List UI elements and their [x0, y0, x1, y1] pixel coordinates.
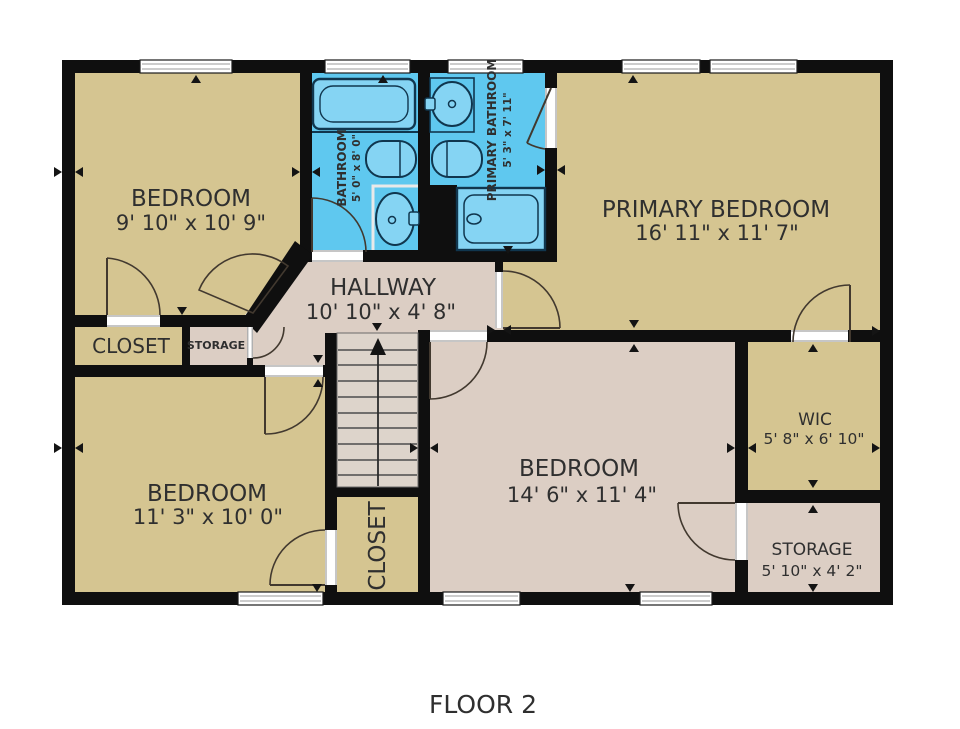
primary-bathroom-dims: 5' 3" x 7' 11": [502, 92, 514, 167]
closet-left-label: CLOSET: [92, 334, 170, 358]
bedroom-tl-dims: 9' 10" x 10' 9": [116, 211, 266, 235]
storage-br-name: STORAGE: [772, 540, 853, 560]
toilet: [432, 141, 482, 177]
primary-bathroom-name: PRIMARY BATHROOM: [485, 59, 499, 202]
wall-bedroom-center-right-a: [735, 342, 748, 503]
wall-bedroom-tl-bottom-a: [62, 315, 107, 327]
closet-stairs-label: CLOSET: [365, 500, 391, 590]
window: [443, 592, 520, 605]
wall-outer-left: [62, 60, 75, 605]
wall-stairs-left: [325, 333, 337, 530]
wall-primary-bath-right: [545, 148, 557, 262]
window: [710, 60, 797, 73]
doorway-bedroom-center: [430, 330, 487, 342]
wall-stairs-bottom: [325, 487, 418, 497]
wall-bath-bottom: [363, 250, 557, 262]
hallway-name: HALLWAY: [330, 275, 437, 301]
doorway-wic: [791, 330, 848, 342]
window: [622, 60, 700, 73]
primary-bedroom-dims: 16' 11" x 11' 7": [635, 221, 799, 245]
wall-bedroom-tl-bottom-b: [160, 315, 253, 327]
shower: [457, 188, 545, 250]
wall-bedroom-center-right-b: [735, 560, 748, 592]
toilet: [366, 141, 416, 177]
bedroom-tl-name: BEDROOM: [131, 186, 251, 212]
wall-midplan-a: [418, 330, 430, 342]
wall-wic-storage-divider: [748, 490, 880, 503]
floor-plan-page: BEDROOM 9' 10" x 10' 9" BATHROOM 5' 0" x…: [0, 0, 960, 729]
floor-caption: FLOOR 2: [429, 690, 537, 719]
floor-plan-svg: BEDROOM 9' 10" x 10' 9" BATHROOM 5' 0" x…: [0, 0, 960, 729]
bedroom-bl-name: BEDROOM: [147, 481, 267, 507]
wall-stairs-right: [418, 330, 430, 595]
bathtub: [313, 79, 415, 129]
storage-small-label: STORAGE: [187, 339, 245, 352]
doorway-storage-small: [247, 327, 253, 358]
hallway-dims: 10' 10" x 4' 8": [306, 300, 456, 324]
doorway-closet-stairs: [325, 530, 337, 585]
bathroom-name: BATHROOM: [335, 129, 349, 206]
bedroom-bl-dims: 11' 3" x 10' 0": [133, 505, 283, 529]
bathroom-dims: 5' 0" x 8' 0": [351, 134, 363, 202]
wall-midplan-c: [503, 330, 791, 342]
doorway-bedroom-bl: [265, 365, 323, 377]
bedroom-center-dims: 14' 6" x 11' 4": [507, 483, 657, 507]
primary-bedroom-name: PRIMARY BEDROOM: [602, 197, 830, 223]
wall-bathroom-left: [300, 73, 312, 262]
wall-primary-bath-right-top: [545, 73, 557, 88]
wall-bedroom-bl-top-a: [62, 365, 265, 377]
window: [140, 60, 232, 73]
wic-name: WIC: [798, 410, 832, 430]
window: [325, 60, 410, 73]
wic-dims: 5' 8" x 6' 10": [764, 430, 865, 448]
wall-closet-stairs-left-b: [325, 585, 337, 597]
window: [640, 592, 712, 605]
doorway-bedroom-tl-closet: [107, 315, 160, 327]
doorway-bathroom: [312, 250, 363, 262]
doorway-primary-bedroom: [495, 272, 503, 328]
wall-hallway-right-stub: [495, 258, 503, 272]
doorway-storage-br: [735, 503, 748, 560]
wall-bath-block: [418, 185, 457, 262]
wall-outer-right: [880, 60, 893, 605]
storage-br-dims: 5' 10" x 4' 2": [762, 562, 863, 580]
wall-bath-divider: [418, 73, 430, 185]
bedroom-center-name: BEDROOM: [519, 456, 639, 482]
window: [238, 592, 323, 605]
